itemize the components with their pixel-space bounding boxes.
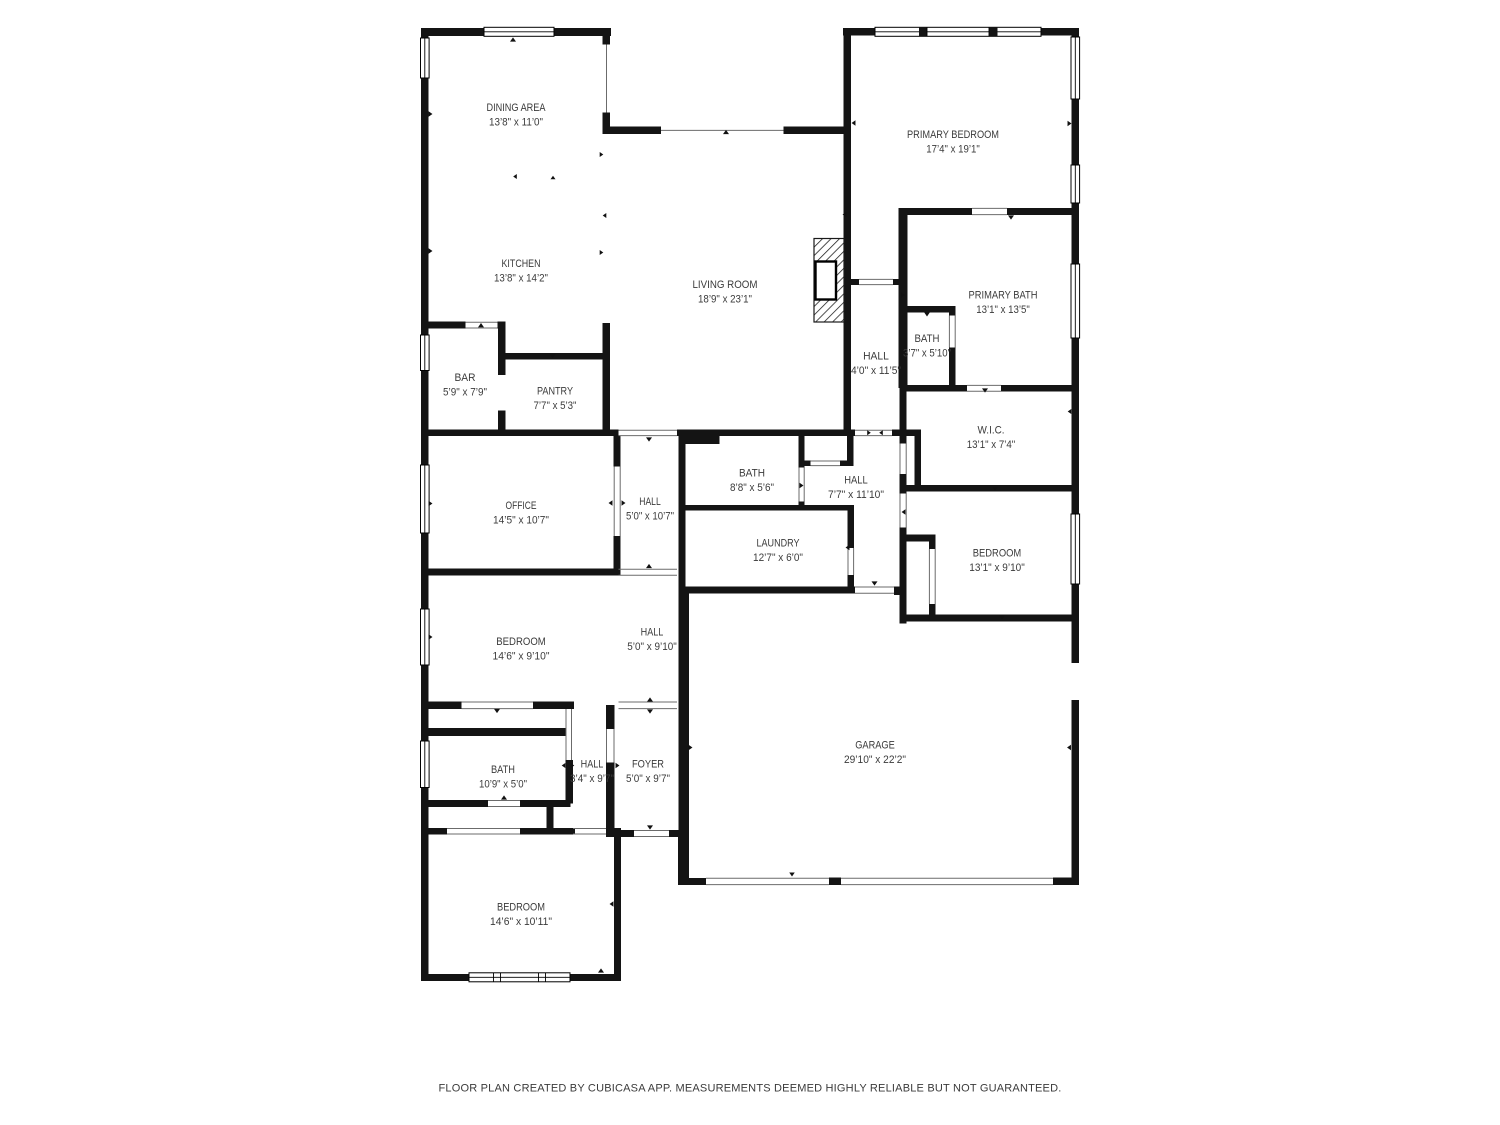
svg-text:FOYER: FOYER <box>632 759 664 771</box>
svg-text:DINING AREA: DINING AREA <box>487 102 547 114</box>
svg-text:5’0" x 10’7": 5’0" x 10’7" <box>626 511 674 523</box>
svg-text:HALL: HALL <box>844 475 868 487</box>
svg-text:14’6" x 10’11": 14’6" x 10’11" <box>490 916 552 928</box>
svg-text:GARAGE: GARAGE <box>855 740 895 752</box>
svg-text:3’7" x 5’10": 3’7" x 5’10" <box>903 348 951 360</box>
svg-text:7’7" x 5’3": 7’7" x 5’3" <box>534 400 577 412</box>
svg-text:BEDROOM: BEDROOM <box>973 548 1022 560</box>
svg-text:LIVING ROOM: LIVING ROOM <box>693 279 758 291</box>
svg-text:BATH: BATH <box>915 333 940 345</box>
svg-text:14’5" x 10’7": 14’5" x 10’7" <box>493 515 549 527</box>
svg-text:14’6" x 9’10": 14’6" x 9’10" <box>493 651 550 663</box>
svg-text:LAUNDRY: LAUNDRY <box>757 538 801 550</box>
svg-text:HALL: HALL <box>639 496 661 508</box>
svg-text:8’8" x 5’6": 8’8" x 5’6" <box>730 482 774 494</box>
svg-text:29’10" x 22’2": 29’10" x 22’2" <box>844 754 906 766</box>
svg-text:HALL: HALL <box>641 627 664 639</box>
svg-text:7’7" x 11’10": 7’7" x 11’10" <box>828 489 884 501</box>
svg-text:13’1" x 7’4": 13’1" x 7’4" <box>967 439 1016 451</box>
svg-text:3’4" x 9’7": 3’4" x 9’7" <box>570 773 614 785</box>
svg-text:BATH: BATH <box>491 764 515 776</box>
svg-text:BEDROOM: BEDROOM <box>497 902 545 914</box>
svg-text:W.I.C.: W.I.C. <box>978 425 1005 437</box>
svg-text:10’9" x 5’0": 10’9" x 5’0" <box>479 779 527 791</box>
svg-text:BATH: BATH <box>739 468 765 480</box>
svg-text:HALL: HALL <box>863 351 889 363</box>
svg-text:13’1" x 9’10": 13’1" x 9’10" <box>969 562 1025 574</box>
svg-text:5’9" x 7’9": 5’9" x 7’9" <box>443 387 487 399</box>
svg-text:BEDROOM: BEDROOM <box>496 636 546 648</box>
svg-text:PRIMARY BATH: PRIMARY BATH <box>969 290 1038 302</box>
svg-text:5’0" x 9’7": 5’0" x 9’7" <box>626 773 670 785</box>
svg-text:13’8" x 14’2": 13’8" x 14’2" <box>494 273 548 285</box>
svg-text:4’0" x 11’5": 4’0" x 11’5" <box>851 365 901 377</box>
svg-text:KITCHEN: KITCHEN <box>502 258 541 270</box>
svg-text:HALL: HALL <box>581 759 604 771</box>
svg-text:13’8" x 11’0": 13’8" x 11’0" <box>489 117 543 129</box>
svg-text:18’9" x 23’1": 18’9" x 23’1" <box>698 294 752 306</box>
svg-text:PANTRY: PANTRY <box>537 386 574 398</box>
svg-text:13’1" x 13’5": 13’1" x 13’5" <box>976 304 1030 316</box>
svg-text:FLOOR PLAN CREATED BY CUBICASA: FLOOR PLAN CREATED BY CUBICASA APP. MEAS… <box>439 1083 1062 1095</box>
svg-text:12’7" x 6’0": 12’7" x 6’0" <box>753 552 803 564</box>
svg-text:5’0" x 9’10": 5’0" x 9’10" <box>627 641 677 653</box>
svg-text:17’4" x 19’1": 17’4" x 19’1" <box>926 144 980 156</box>
svg-text:OFFICE: OFFICE <box>506 500 537 512</box>
svg-text:BAR: BAR <box>455 372 476 384</box>
svg-text:PRIMARY BEDROOM: PRIMARY BEDROOM <box>907 129 999 141</box>
